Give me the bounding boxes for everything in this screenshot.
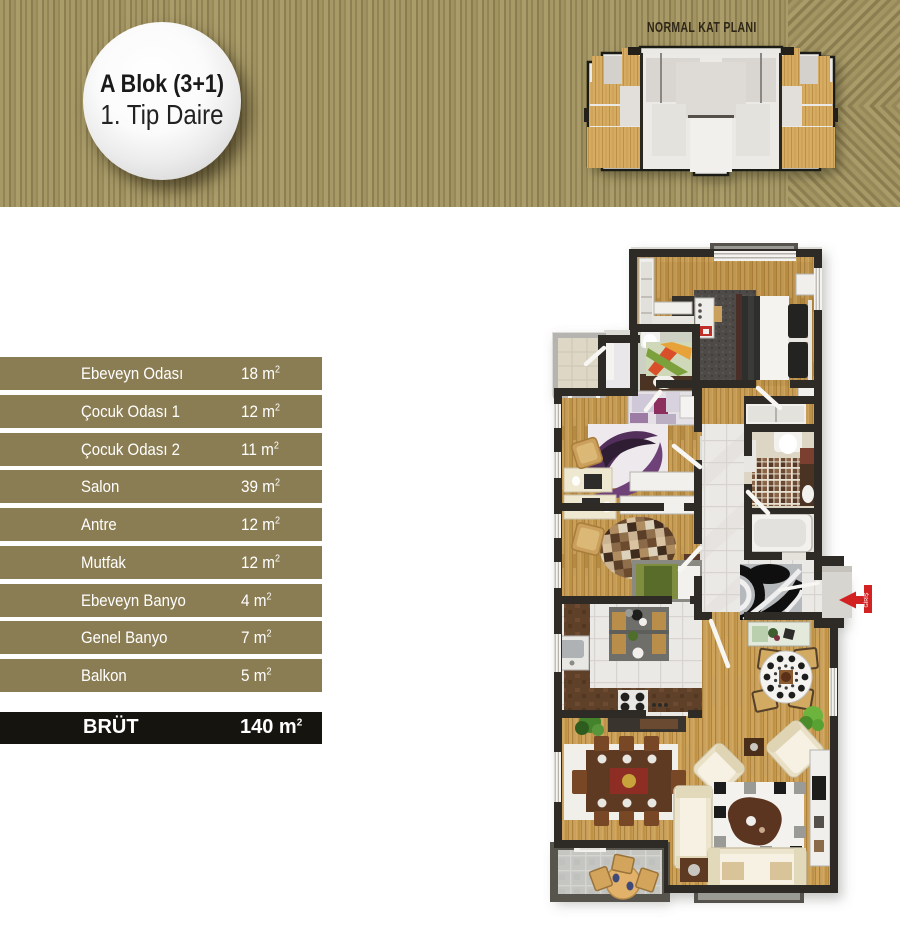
svg-text:GİRİŞ: GİRİŞ xyxy=(863,592,870,607)
